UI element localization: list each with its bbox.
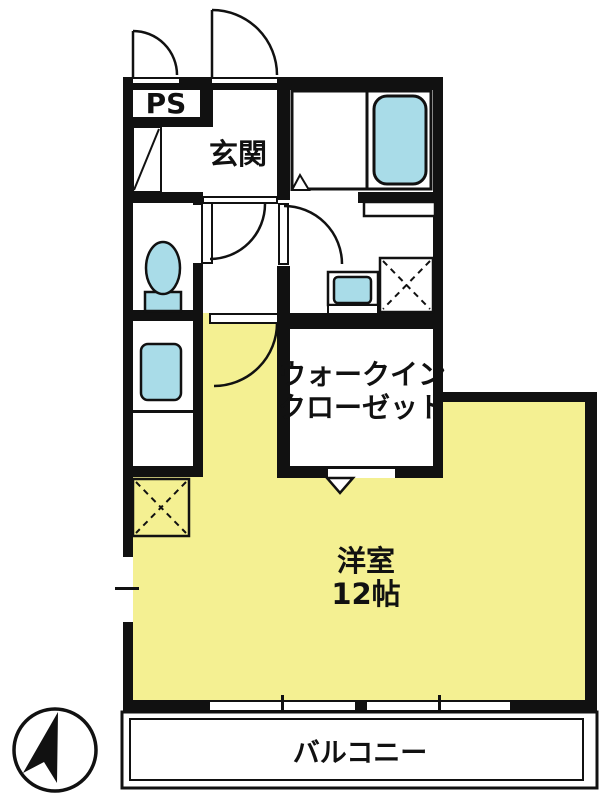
- wall-above-toilet: [123, 192, 203, 203]
- wall-top-wide-section: [443, 392, 597, 402]
- washer-space: [380, 258, 433, 312]
- compass: [14, 709, 96, 791]
- main-room-size-label: 12帖: [331, 577, 400, 611]
- room-floor-right: [443, 400, 586, 478]
- sink-unit-base: [328, 305, 378, 314]
- ps-label: PS: [146, 87, 187, 120]
- wall-closet-bottom-right: [395, 466, 443, 478]
- floor-plan: PS 玄関 ウォークイン クローゼット 洋室 12帖 バルコニー: [0, 0, 609, 800]
- ps-door-sill: [132, 78, 180, 84]
- washbasin: [141, 344, 181, 400]
- washroom-shelf: [364, 202, 435, 216]
- toilet-bowl: [146, 242, 180, 294]
- wall-closet-bottom-left: [277, 466, 328, 478]
- bathtub: [374, 96, 426, 184]
- wall-entrance-right: [277, 77, 290, 200]
- washroom-door-leaf: [279, 204, 288, 264]
- balcony-label: バルコニー: [293, 738, 427, 769]
- wall-left-lower: [123, 622, 133, 712]
- main-room-label: 洋室: [337, 544, 395, 578]
- wall-bottom: [123, 700, 597, 712]
- closet-opening-line: [328, 466, 395, 469]
- hall-door-leaf: [202, 203, 212, 263]
- toilet: [145, 242, 181, 311]
- entrance-step-line: [203, 197, 277, 203]
- washbasin-counter-line: [133, 410, 193, 413]
- entrance-label: 玄関: [209, 137, 267, 171]
- closet-label-line1: ウォークイン: [278, 358, 446, 391]
- sink-basin: [334, 277, 371, 303]
- floor-plan-svg: PS 玄関 ウォークイン クローゼット 洋室 12帖 バルコニー: [0, 0, 609, 800]
- wall-right-lower-section: [585, 392, 597, 712]
- wall-washbasin-bottom: [123, 466, 203, 477]
- entrance-door-sill: [211, 78, 278, 84]
- wall-closet-top: [277, 313, 443, 329]
- window-left-tick: [115, 587, 139, 590]
- closet-label-line2: クローゼット: [278, 391, 446, 424]
- wall-hall-left: [193, 263, 203, 477]
- room-floor-hall-strip: [203, 313, 278, 478]
- room-door-leaf: [210, 314, 278, 323]
